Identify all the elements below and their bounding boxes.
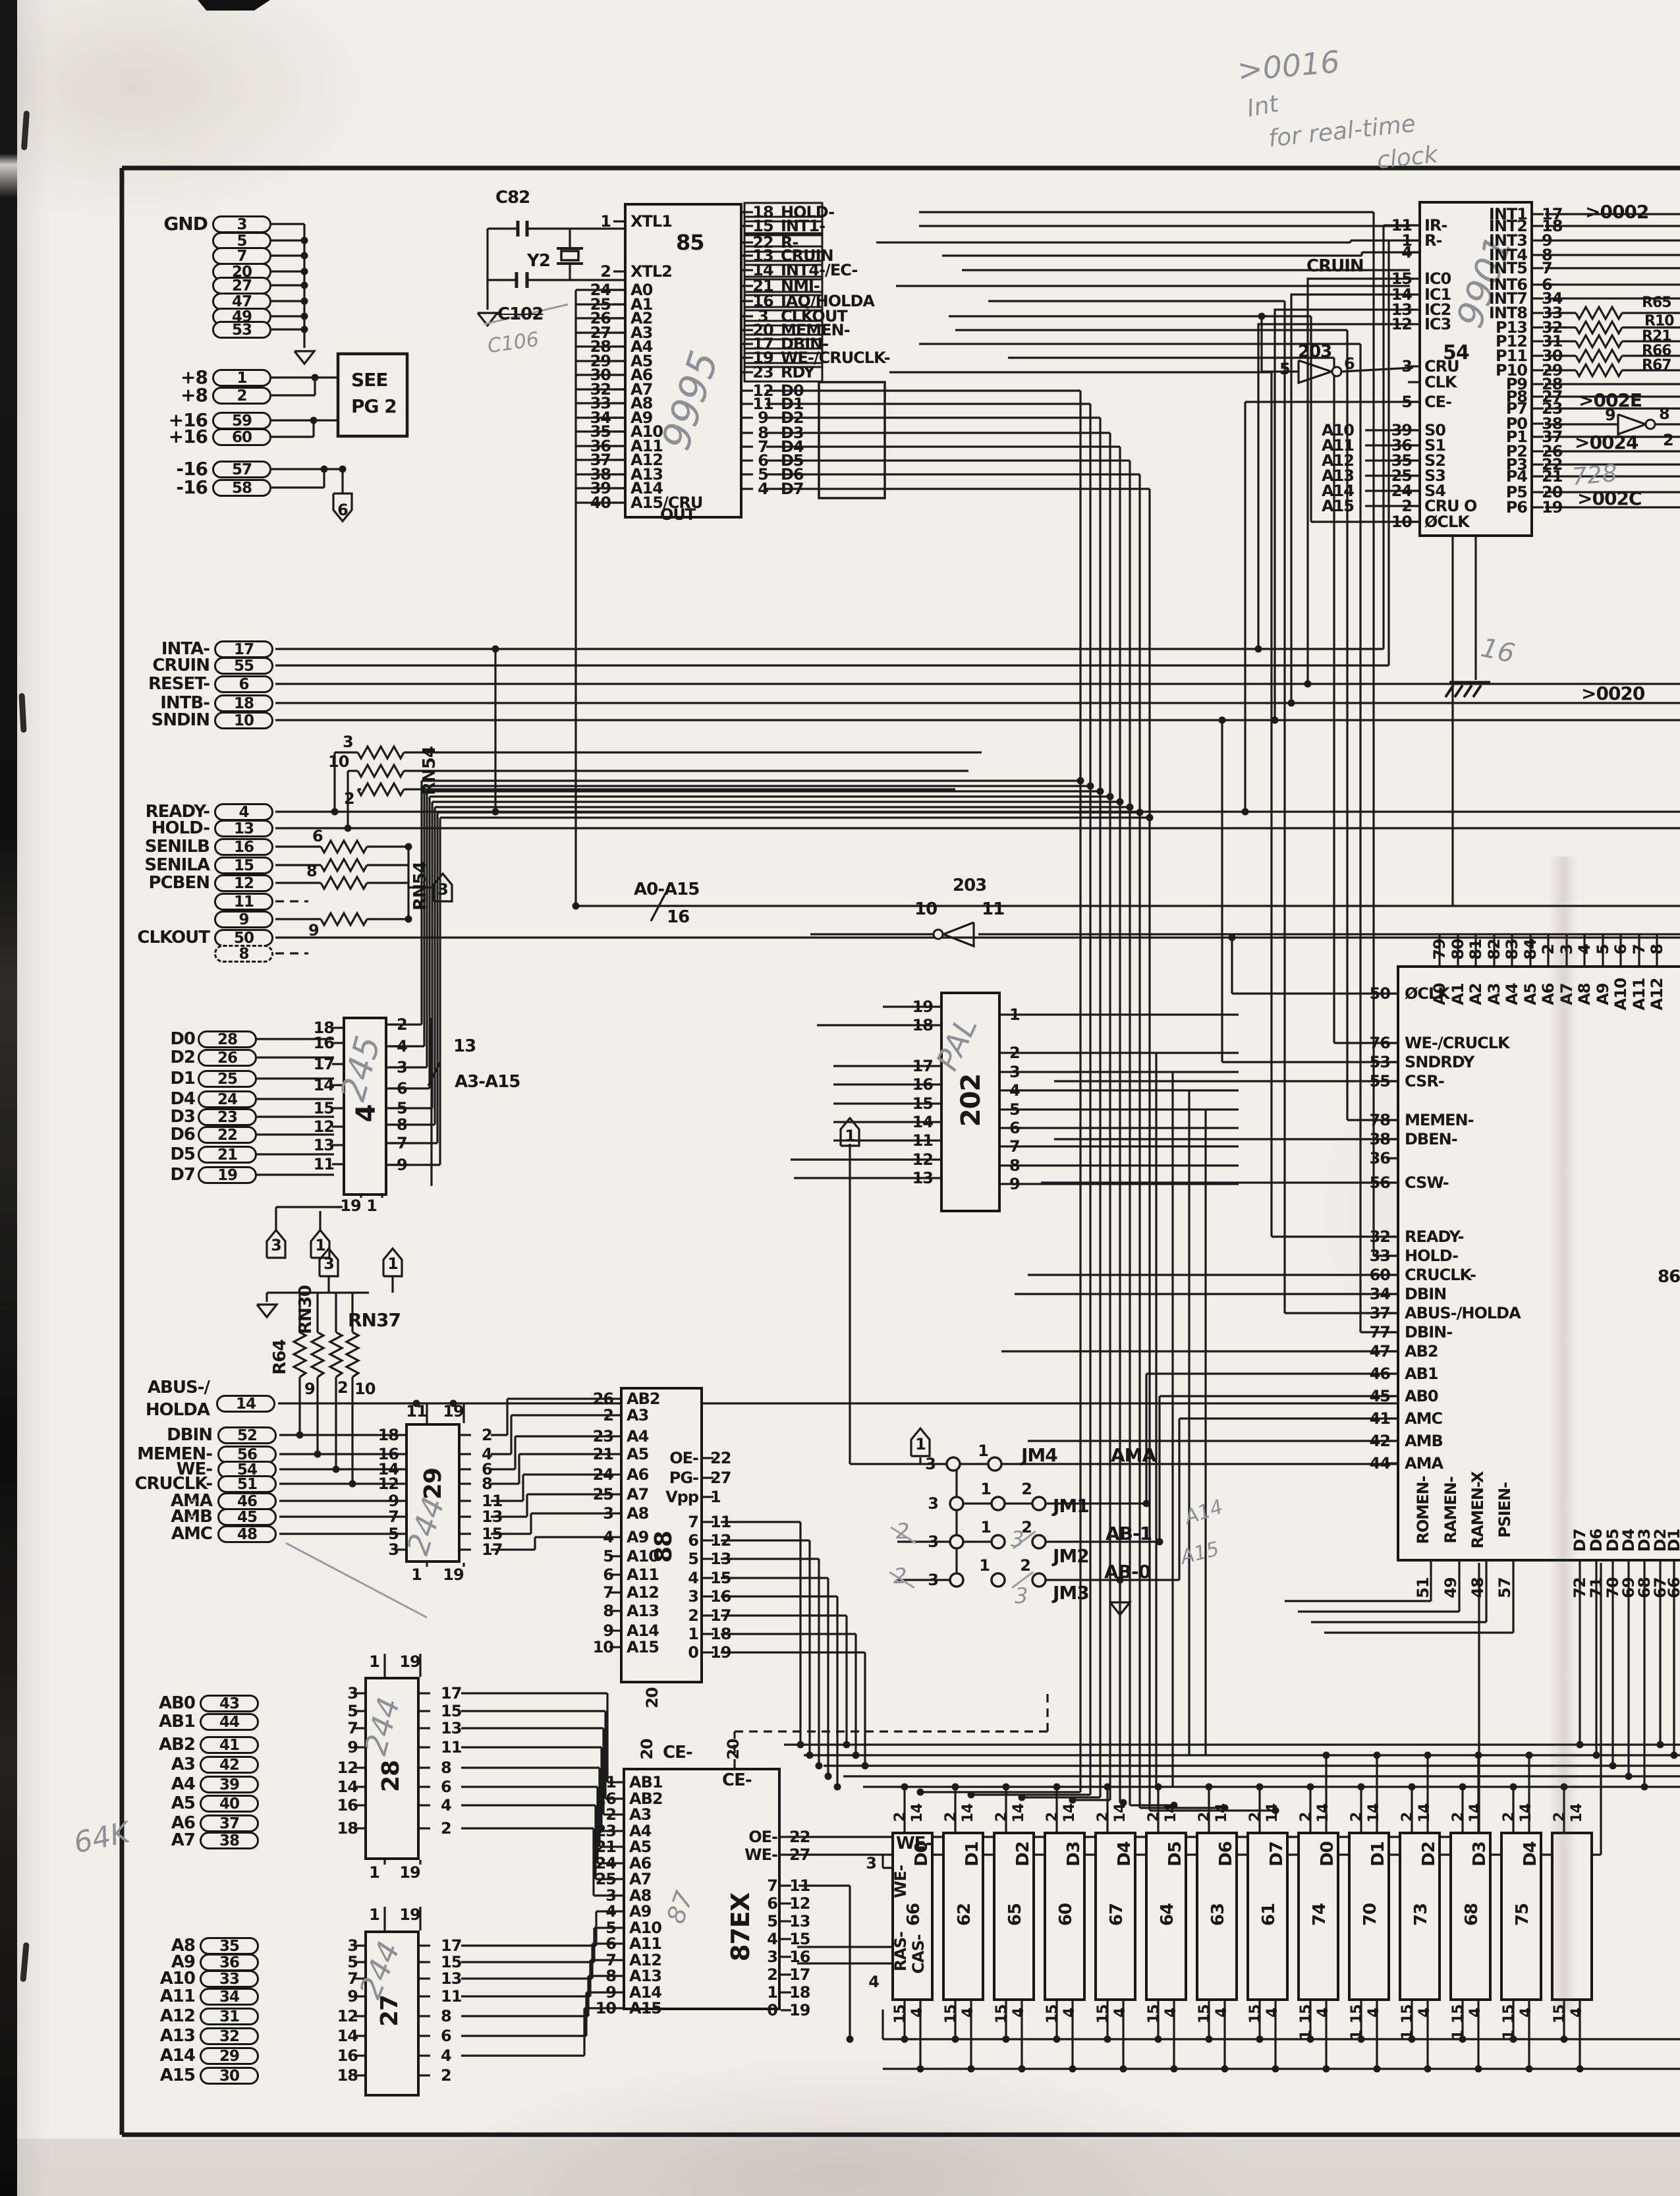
connector-pin-number: 60 [232,429,252,446]
pin-label: AMA [1405,1455,1443,1471]
pin-number: 9 [397,1157,407,1173]
jumper-pad[interactable] [950,1497,963,1510]
connector-pin[interactable]: 22 [198,1126,257,1144]
pin-number: 7 [347,1971,358,1986]
pin-number: 2 [1540,944,1556,955]
dram-chip-number: 60 [1057,1903,1075,1926]
handwritten-note: Int [1245,92,1280,121]
connector-pin[interactable]: 1 [212,369,271,387]
pin-label: D7 [1572,1529,1588,1552]
schematic-label: 1 [845,1128,855,1144]
pin-label: P6 [1506,499,1527,515]
connector-pin[interactable]: 50 [214,929,273,947]
pin-number: 2 [1299,1813,1314,1822]
wire-junction [405,916,412,923]
connector-pin[interactable]: 25 [198,1070,257,1088]
connector-pin-number: 40 [219,1795,239,1813]
connector-pin-number: 1 [237,370,246,387]
schematic-label: 1 [387,1256,398,1272]
connector-pin-number: 16 [234,839,254,856]
wire-junction [1242,808,1249,816]
handwritten-note: 3 [1011,1529,1024,1550]
schematic-label: 86 [1658,1268,1680,1285]
connector-pin[interactable]: 45 [217,1508,277,1526]
pin-number: 8 [605,1968,616,1984]
wire-junction [1069,1797,1077,1804]
schematic-label: 3 [323,1256,334,1272]
jumper-pad[interactable] [992,1535,1005,1548]
connector-pin[interactable]: 48 [217,1525,277,1543]
pin-number: 14 [752,262,773,278]
connector-pin-number: 7 [237,248,246,265]
pin-number: 14 [337,2028,358,2044]
pin-number: 15 [1391,271,1412,287]
wire [1576,335,1622,347]
dram-data-label: D7 [1268,1842,1285,1867]
connector-pin[interactable]: 29 [200,2047,259,2065]
pin-number: 4 [1113,2008,1128,2017]
dram-data-label: D3 [1065,1842,1082,1867]
pin-number: 4 [441,1797,451,1813]
dram-data-label: D2 [1015,1842,1032,1867]
pin-number: 14 [912,1114,933,1130]
connector-pin[interactable]: 15 [214,857,273,874]
connector-pin[interactable]: 26 [198,1049,257,1067]
connector-pin[interactable]: 43 [200,1695,259,1712]
wire [321,859,367,871]
connector-pin[interactable]: 24 [198,1090,257,1108]
wire-junction [1143,1500,1150,1507]
connector-pin[interactable]: 35 [200,1937,259,1955]
pin-number: 79 [1432,939,1447,959]
pin-number: 2 [600,264,611,279]
connector-pin[interactable]: 41 [200,1736,259,1754]
schematic-label: RN30 [297,1285,314,1334]
pin-label: AB1 [1405,1366,1438,1382]
pin-label: AB2 [1405,1343,1438,1359]
pin-label: OE- [669,1450,698,1466]
connector-pin[interactable]: 28 [198,1030,257,1048]
connector-pin[interactable]: 44 [200,1713,259,1731]
pin-number: 17 [482,1542,502,1558]
pin-label: AB2 [629,1791,663,1807]
pin-number: 40 [590,495,611,511]
connector-pin[interactable]: 19 [198,1166,257,1184]
pin-number: 15 [1096,2005,1111,2024]
pin-number: 3 [1009,1064,1020,1080]
dram-chip-number: 62 [956,1903,973,1926]
schematic-label: 3 [928,1534,938,1550]
pin-number: 5 [605,1920,616,1936]
pin-number: 14 [1316,1804,1331,1823]
pin-label: A8 [629,1888,651,1903]
schematic-label: CE- [663,1744,692,1761]
pin-number: 9 [1009,1176,1020,1192]
handwritten-note: 728 [1571,462,1619,490]
pin-number: 56 [1370,1175,1390,1191]
connector-pin[interactable]: 42 [200,1756,259,1774]
pin-number: 69 [1621,1577,1637,1598]
connector-pin-number: 2 [237,387,246,405]
connector-pin[interactable]: 16 [214,838,273,856]
outline-box [819,382,885,498]
connector-pin[interactable]: 12 [214,874,273,892]
connector-pin[interactable]: 38 [200,1832,259,1849]
pin-number: 4 [910,2008,925,2017]
wire-junction [1272,717,1279,724]
pin-number: 36 [1370,1150,1390,1166]
connector-pin-number: 22 [217,1127,237,1144]
connector-pin[interactable]: 21 [198,1146,257,1164]
schematic-label: 3 [437,882,448,897]
pin-number: 37 [1370,1305,1390,1321]
connector-pin-number: 9 [238,911,248,928]
pin-number: 2 [1451,1813,1466,1822]
connector-pin[interactable]: 3 [212,215,271,233]
pin-label: 1 [688,1626,698,1642]
wire-junction [1641,1784,1648,1791]
pin-number: 46 [1370,1366,1390,1382]
jumper-pad[interactable] [1032,1573,1046,1587]
connector-pin[interactable]: 6 [214,675,273,693]
pin-label: AB2 [627,1391,660,1407]
wire-junction [1019,1794,1026,1801]
pin-number: 34 [1370,1286,1390,1302]
pin-label: PG- [669,1470,698,1486]
jumper-pad[interactable] [947,1457,960,1471]
wire [312,1332,323,1377]
pin-number: 27 [710,1470,731,1486]
pin-number: 2 [397,1017,407,1032]
schematic-label: +16 [169,428,208,446]
schematic-label: AB0 [159,1695,195,1712]
dram-data-label: D0 [913,1842,930,1867]
pin-label: A4 [1504,983,1520,1005]
pin-number: 14 [1164,1804,1179,1823]
pin-number: 16 [912,1077,933,1092]
wire-junction [917,1789,924,1796]
schematic-label: AB1 [159,1713,195,1730]
connector-pin[interactable]: 2 [212,387,271,405]
jumper-pad[interactable] [992,1573,1005,1587]
wire-junction [847,2036,854,2043]
pin-number: 16 [314,1035,334,1051]
connector-pin[interactable]: 59 [212,412,271,430]
pin-number: 13 [912,1170,933,1186]
connector-pin[interactable]: 27 [212,277,271,295]
connector-pin[interactable]: 32 [200,2027,259,2045]
pin-label: 4 [767,1931,777,1947]
connector-pin[interactable]: 39 [200,1776,259,1793]
pin-label: A3 [629,1807,651,1822]
pin-label: A11 [1631,978,1647,1011]
pin-number: 16 [710,1589,731,1604]
pin-number: 19 [399,1865,420,1880]
pin-number: 16 [337,1797,358,1813]
pin-label: 2 [688,1608,698,1623]
pin-label: P4 [1506,468,1527,484]
wire-junction [1610,1762,1617,1770]
pin-number: 15 [1451,2005,1466,2024]
schematic-label: 202 [958,1074,984,1127]
connector-pin[interactable]: 46 [217,1492,277,1510]
schematic-label: 6 [1344,356,1355,372]
connector-pin[interactable]: 31 [200,2008,259,2025]
connector-pin[interactable]: 23 [198,1108,257,1126]
connector-pin[interactable]: 53 [212,321,271,339]
wire-junction [825,1773,832,1780]
jumper-pad[interactable] [1032,1497,1046,1510]
pin-number: 68 [1637,1577,1652,1598]
pin-number: 4 [1009,1083,1020,1098]
connector-pin[interactable]: 14 [216,1395,275,1413]
pin-label: A10 [629,1920,661,1936]
pin-number: 4 [1316,2008,1331,2017]
connector-pin[interactable]: 11 [214,893,273,911]
connector-pin[interactable]: 9 [214,911,273,928]
pin-label: 5 [688,1551,698,1567]
wire-junction [797,1741,804,1749]
pin-label: OE- [748,1829,777,1845]
wire-junction [1097,788,1104,795]
connector-pin[interactable]: 60 [212,428,271,446]
pin-number: 13 [789,1913,810,1929]
pin-number: 6 [1009,1120,1020,1136]
pin-number: 2 [1350,1813,1364,1822]
schematic-label: A3 [171,1756,195,1773]
dram-chip-number: 65 [1007,1903,1024,1926]
schematic-label: 20 [725,1739,741,1759]
connector-pin[interactable]: 7 [212,247,271,265]
connector-pin-number: 45 [237,1509,257,1526]
connector-pin[interactable]: 13 [214,820,273,837]
pin-number: 17 [710,1608,731,1623]
pin-number: 6 [605,1936,616,1952]
pin-number: 4 [441,2048,451,2064]
connector-pin[interactable]: 4 [214,803,273,821]
connector-pin[interactable]: 36 [200,1954,259,1971]
dram-chip-number: 73 [1413,1903,1430,1926]
pin-label: XTL1 [630,213,672,229]
pin-number: 33 [1370,1248,1390,1264]
connector-pin[interactable]: 8 [214,945,273,963]
pin-number: 77 [1370,1324,1390,1340]
connector-pin[interactable]: 57 [212,461,271,478]
pin-number: 1 [369,1654,379,1670]
schematic-label: D7 [170,1166,195,1183]
pin-number: 4 [1418,2008,1432,2017]
connector-pin[interactable]: 58 [212,479,271,497]
pin-label: A7 [1559,983,1575,1005]
pin-label: AMC [1405,1411,1442,1426]
schematic-label: D4 [170,1090,195,1108]
connector-pin[interactable]: 55 [214,657,273,675]
pin-label: ABUS-/HOLDA [1405,1305,1521,1321]
wire [294,1332,306,1377]
connector-pin[interactable]: 30 [200,2067,259,2085]
connector-pin[interactable]: 33 [200,1970,259,1988]
pin-label: A14 [629,1985,661,2000]
pin-label: D5 [1605,1529,1621,1552]
pin-number: 53 [1370,1054,1390,1070]
pin-number: 5 [1401,394,1412,410]
connector-pin[interactable]: 17 [214,640,273,658]
pin-number: 12 [912,1152,933,1168]
pin-label: A11 [627,1567,659,1583]
schematic-label: A5 [171,1795,195,1812]
pin-number: 15 [944,2005,959,2024]
pin-label: A4 [629,1823,651,1839]
jumper-pad[interactable] [992,1497,1005,1510]
pin-number: 13 [482,1509,502,1525]
schematic-label: CRUIN [1306,258,1364,275]
pin-number: 51 [1415,1577,1431,1598]
schematic-label: 2 [337,1380,348,1395]
schematic-label: 20 [639,1739,655,1759]
pin-number: 70 [1605,1577,1621,1598]
pin-number: 11 [441,1988,461,2004]
wire-junction [1219,717,1226,724]
pin-number: 11 [710,1514,731,1530]
dram-chip-partial[interactable] [1551,1832,1593,2001]
handwritten-note: - [187,1504,195,1527]
jumper-pad[interactable] [988,1457,1001,1471]
pin-number: 4 [961,2008,976,2017]
schematic-label: 2 [1021,1481,1032,1497]
schematic-label: >0002 [1585,203,1648,221]
pin-number: 2 [1248,1813,1263,1822]
schematic-label: A11 [160,1988,195,2005]
connector-pin-number: 14 [236,1395,256,1413]
pin-number: 3 [1559,944,1575,955]
pin-number: 15 [995,2005,1009,2024]
pin-number: 18 [378,1427,399,1443]
schematic-label: D0 [170,1030,195,1048]
schematic-label: 2 [344,791,354,806]
pin-label: A5 [629,1839,651,1855]
pin-label: A7 [629,1871,651,1887]
jumper-pad[interactable] [950,1573,963,1587]
connector-pin-number: 48 [237,1526,257,1543]
pin-number: 2 [603,1407,613,1423]
connector-pin[interactable]: 40 [200,1795,259,1813]
pin-number: 4 [605,1903,616,1919]
connector-pin[interactable]: 52 [217,1426,277,1444]
pin-number: 12 [337,1760,358,1776]
pin-number: 3 [605,1888,616,1903]
pin-label: 2 [767,1967,777,1983]
pin-number: 15 [1350,2005,1364,2024]
schematic-label: R65 [1642,296,1671,310]
jumper-pad[interactable] [1032,1535,1046,1548]
pin-number: 2 [1096,1813,1111,1822]
connector-pin[interactable]: 10 [214,712,273,729]
pin-number: 19 [789,2002,810,2018]
connector-pin-number: 29 [219,2048,239,2065]
schematic-label: D2 [170,1049,195,1066]
pin-number: 24 [596,1855,616,1871]
connector-pin-number: 30 [219,2068,239,2085]
connector-pin-number: 12 [234,875,254,892]
pin-number: 5 [1009,1102,1020,1117]
pin-label: AMB [1405,1433,1443,1449]
pin-label: A12 [1649,978,1665,1011]
pin-number: 18 [789,1985,810,2000]
schematic-label: 6 [337,502,348,518]
wire [321,877,367,889]
jumper-pad[interactable] [950,1535,963,1548]
pin-label: A10 [1613,978,1629,1011]
pin-label: Vpp [665,1489,698,1505]
schematic-label: D3 [170,1108,195,1125]
pin-number: 7 [1009,1139,1020,1154]
schematic-label: 8 [1659,406,1669,422]
pin-label: A10 [627,1548,659,1564]
pin-label: INT4-/EC- [781,262,857,278]
pin-number: 10 [1391,514,1412,530]
connector-pin[interactable]: 51 [217,1475,277,1493]
schematic-label: A4 [171,1776,195,1793]
pin-number: 78 [1370,1112,1390,1128]
pin-label: ØCLK [1424,514,1469,530]
connector-pin[interactable]: 34 [200,1988,259,2006]
pin-label: A0 [1432,983,1447,1005]
pin-number: 15 [1198,2005,1212,2024]
pin-number: 14 [1469,1804,1483,1823]
pin-label: A1 [1450,983,1466,1005]
pin-number: 4 [1164,2008,1179,2017]
wire-junction [492,646,499,653]
connector-pin[interactable]: 37 [200,1815,259,1832]
schematic-label: R10 [1644,314,1674,329]
connector-pin[interactable]: 18 [214,694,273,712]
pin-number: 4 [1519,2008,1534,2017]
wire-junction [339,466,347,473]
pin-label: 6 [688,1533,698,1548]
schematic-label: CLKOUT [137,929,210,946]
pin-number: 17 [912,1058,933,1074]
schematic-label: CRUIN [152,657,210,674]
pin-label: CRU O [1424,498,1476,514]
pin-number: 2 [1553,1813,1567,1822]
pin-label: CRUCLK- [1405,1267,1476,1283]
pin-number: 22 [710,1450,731,1466]
pin-number: 50 [1370,986,1390,1001]
pin-number: 4 [1469,2008,1483,2017]
connector-pin-number: 15 [234,857,254,874]
pin-number: 5 [347,1703,358,1719]
pin-number: 15 [912,1096,933,1112]
wire [321,913,367,925]
schematic-page: GND+8+8+16+16-16-16SEEPG 2C82Y2C102C106>… [0,0,1680,2196]
pin-number: 12 [378,1476,399,1492]
pin-number: 4 [758,481,768,497]
wire [257,1305,277,1317]
pin-number: 12 [337,2008,358,2024]
wire-junction [1671,1752,1678,1759]
wire-junction [492,808,499,816]
dram-data-label: D4 [1522,1842,1539,1867]
wire-junction [296,1432,304,1439]
schematic-label: D5 [170,1146,195,1163]
pin-number: 15 [752,218,773,234]
pin-label: MEMEN- [1405,1112,1474,1128]
pin-number: 13 [314,1137,334,1153]
pin-number: 13 [441,1971,461,1986]
pin-label: 0 [767,2002,777,2018]
connector-pin-number: 25 [217,1071,237,1088]
schematic-label: 1 [980,1481,991,1497]
